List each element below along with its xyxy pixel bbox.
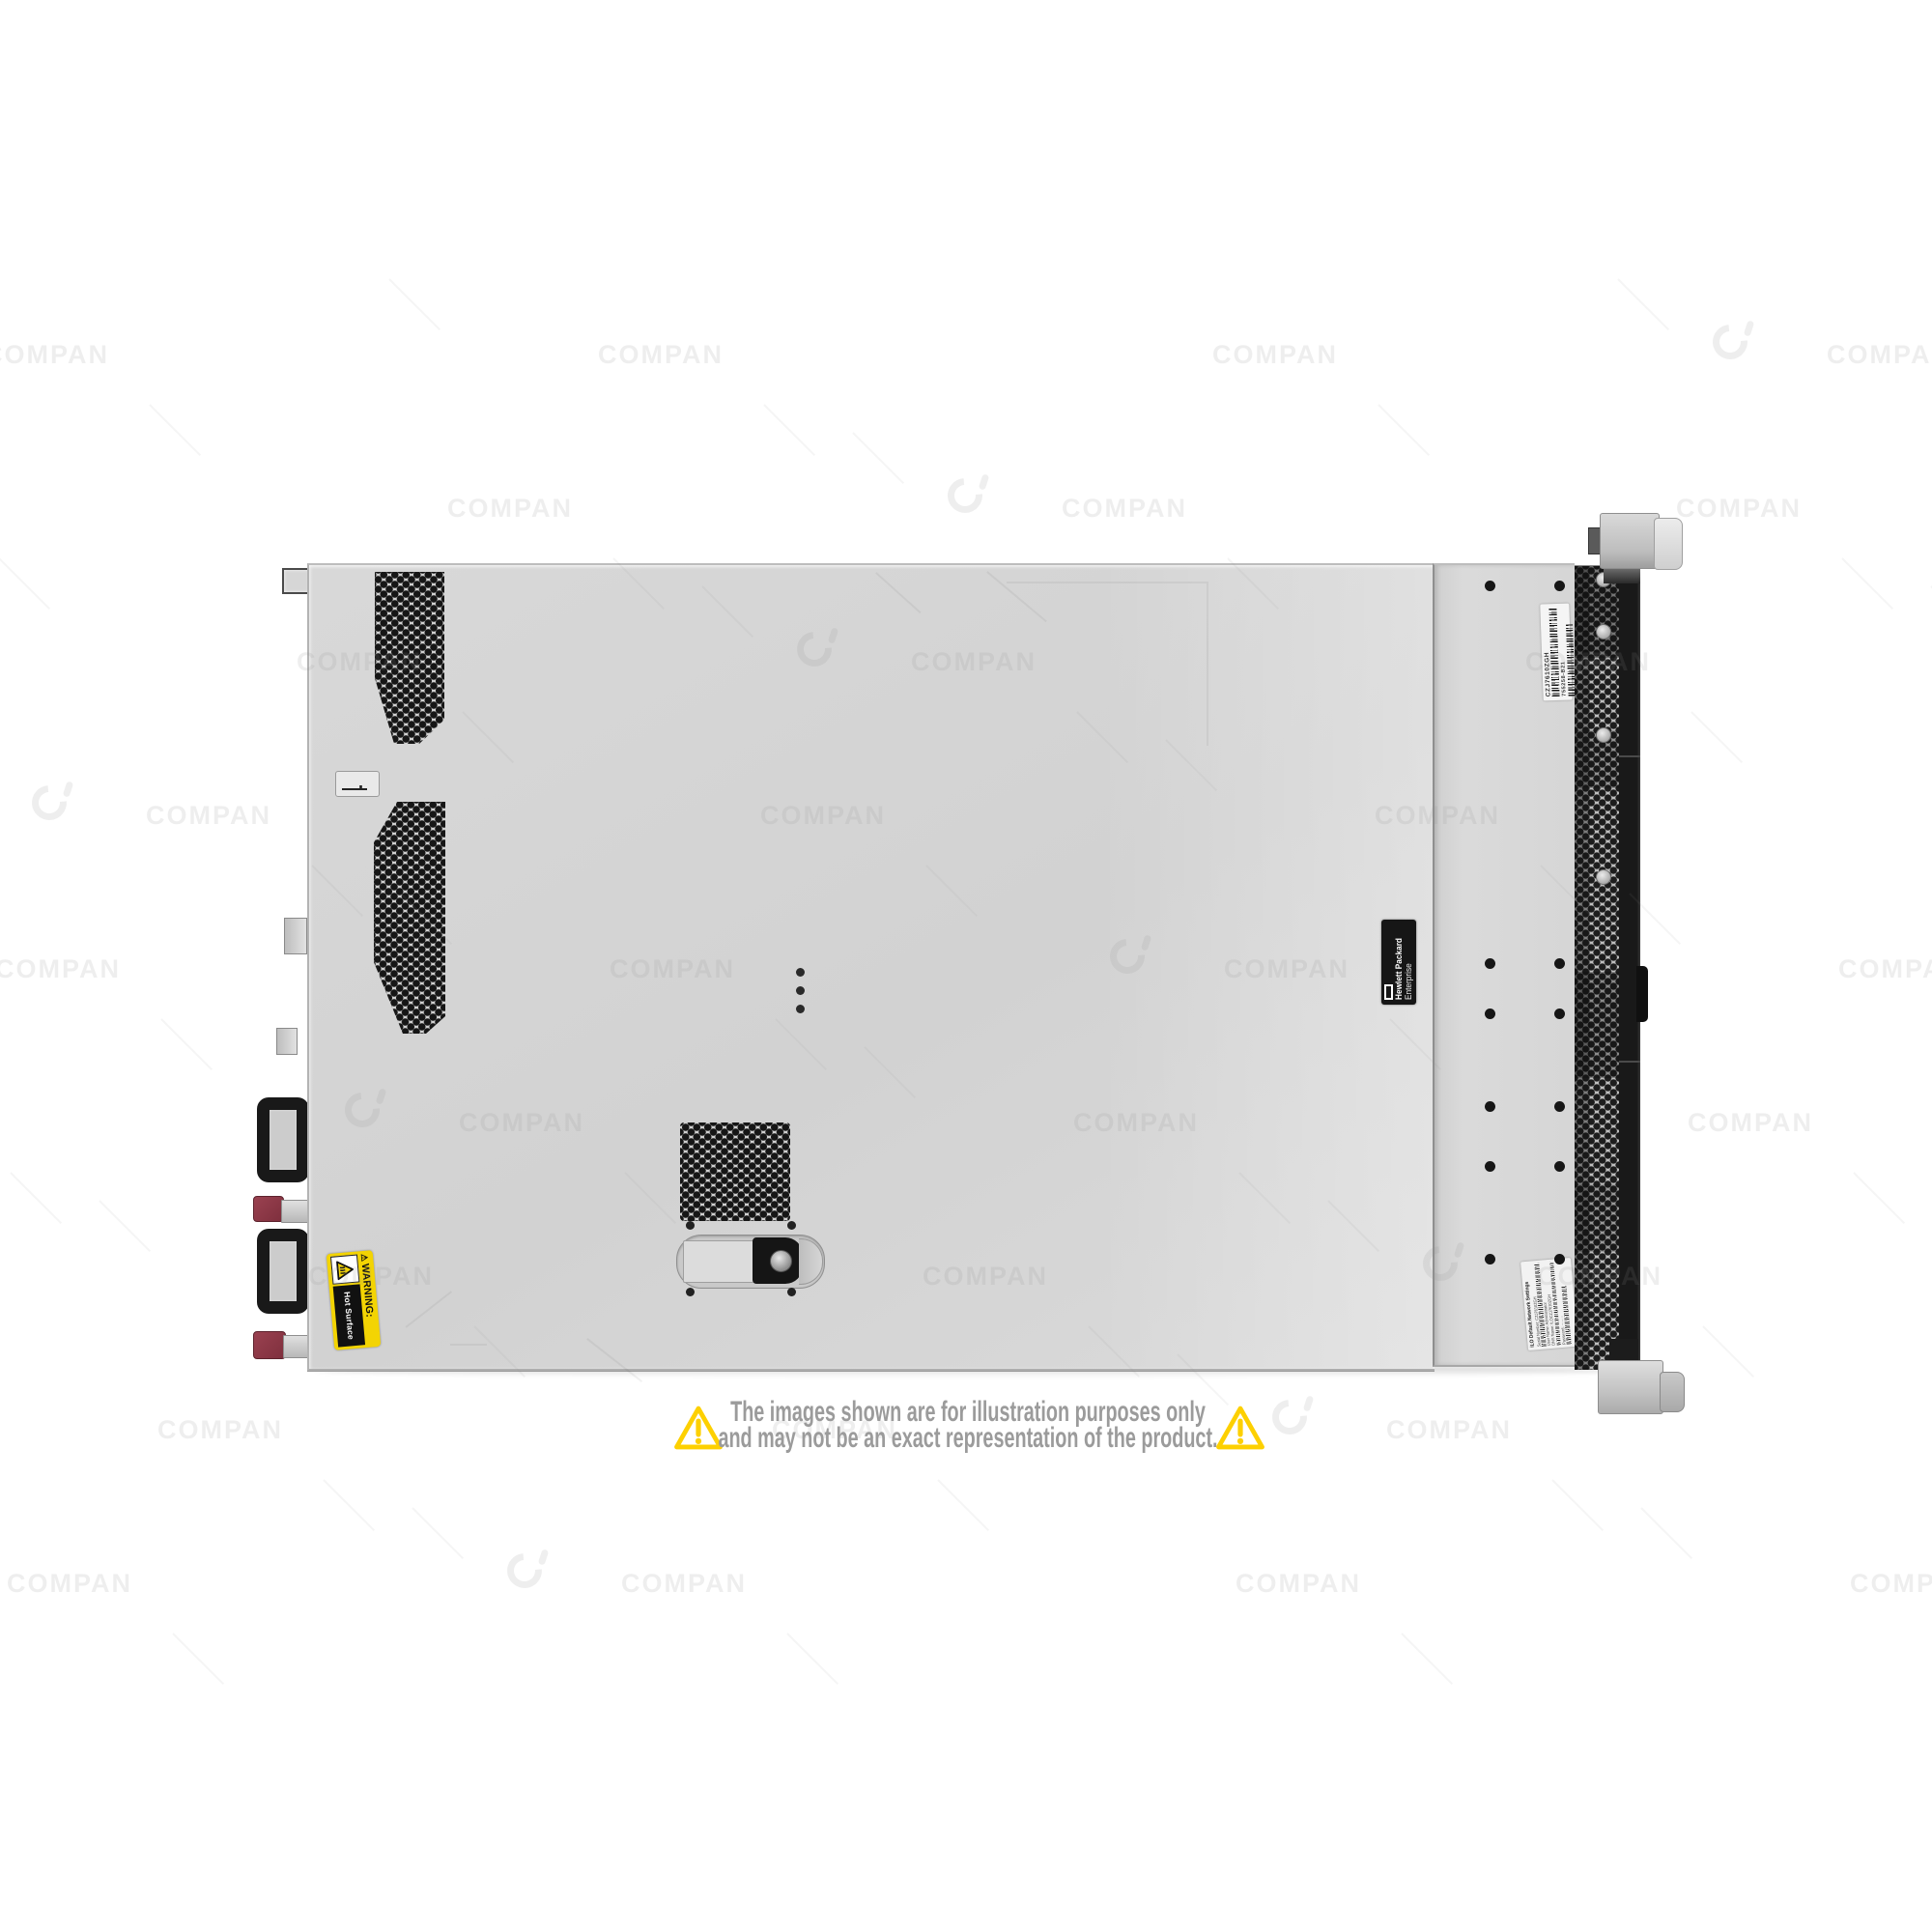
vent-grille — [680, 1122, 790, 1221]
cover-slot — [335, 771, 380, 797]
latch-screw — [770, 1250, 792, 1272]
sfp-cage — [283, 1335, 308, 1358]
cover-dot — [796, 986, 805, 995]
hot-surface-icon — [330, 1254, 359, 1284]
disclaimer-line1: The images shown are for illustration pu… — [648, 1399, 1289, 1425]
warning-triangle-icon — [1215, 1401, 1265, 1455]
rear-metal-fitting — [284, 918, 307, 954]
ilo-settings-label: iLO Default Network Settings Serial Numb… — [1520, 1258, 1578, 1350]
product-photo-canvas: ⚠ WARNING: Hot Surface — [0, 0, 1932, 1932]
vent-grille — [367, 570, 446, 746]
rear-metal-fitting — [276, 1028, 298, 1055]
front-panel-tab — [1636, 966, 1648, 1022]
screw-hole — [1485, 581, 1495, 591]
top-cover: ⚠ WARNING: Hot Surface — [307, 563, 1435, 1371]
latch-plate — [683, 1240, 754, 1283]
rack-ear-top-cap — [1654, 518, 1683, 570]
bezel-seam — [1619, 1061, 1640, 1063]
cover-crease — [406, 1291, 452, 1327]
screw-hole — [1554, 1254, 1565, 1264]
warning-triangle-icon: ⚠ — [358, 1253, 370, 1262]
screw-hole — [686, 1288, 695, 1296]
cover-crease — [987, 571, 1047, 622]
sfp-cage — [281, 1200, 308, 1223]
screw-hole — [1554, 1101, 1565, 1112]
screw-hole — [787, 1221, 796, 1230]
cover-dot — [796, 1005, 805, 1013]
front-section-panel: CZJ7610ZGH 755258-B21 iLO Default Networ… — [1433, 563, 1575, 1367]
serial-barcode-label: CZJ7610ZGH 755258-B21 — [1540, 604, 1572, 701]
hpe-element-logo — [1384, 984, 1393, 1000]
disclaimer: The images shown are for illustration pu… — [0, 1391, 1932, 1478]
brand-line2: Enterprise — [1404, 930, 1413, 1000]
disclaimer-text: The images shown are for illustration pu… — [648, 1399, 1289, 1451]
disclaimer-line2: and may not be an exact representation o… — [648, 1425, 1289, 1451]
grille-shading — [1575, 972, 1619, 1078]
vent-grille — [372, 800, 447, 1036]
cover-emboss-line — [450, 1344, 487, 1346]
screw-hole — [1485, 1254, 1495, 1264]
screw-hole — [1554, 958, 1565, 969]
screw-hole — [1485, 1101, 1495, 1112]
server-photo: ⚠ WARNING: Hot Surface — [0, 0, 1932, 1932]
rack-ear-shadow — [1604, 568, 1640, 583]
screw-hole — [1554, 1161, 1565, 1172]
screw-hole — [787, 1288, 796, 1296]
screw-hole — [686, 1221, 695, 1230]
brand-line1: Hewlett Packard — [1394, 930, 1404, 1000]
cover-emboss-line — [1207, 582, 1208, 746]
cover-dot — [796, 968, 805, 977]
psu-handle — [257, 1229, 309, 1314]
rack-ear-top — [1600, 513, 1660, 569]
grille-screw — [1596, 727, 1611, 743]
screw-hole — [1485, 1009, 1495, 1019]
hot-surface-warning-label: ⚠ WARNING: Hot Surface — [327, 1250, 382, 1350]
hpe-brand-label: Hewlett Packard Enterprise — [1381, 920, 1416, 1005]
cover-emboss-line — [1007, 582, 1207, 583]
sfp-latch — [253, 1196, 284, 1222]
grille-screw — [1596, 624, 1611, 639]
bezel-seam — [1619, 755, 1640, 757]
latch-end-cap — [799, 1238, 823, 1285]
slot-hook — [342, 785, 367, 790]
grille-shading — [1575, 1184, 1619, 1252]
cover-latch — [676, 1235, 825, 1289]
screw-hole — [1485, 1161, 1495, 1172]
psu-handle — [257, 1097, 309, 1182]
cover-crease — [875, 572, 921, 613]
grille-screw — [1596, 869, 1611, 885]
warning-body: Hot Surface — [333, 1284, 365, 1347]
screw-hole — [1554, 1009, 1565, 1019]
screw-hole — [1485, 958, 1495, 969]
screw-hole — [1554, 581, 1565, 591]
sfp-latch — [253, 1331, 286, 1359]
front-grille — [1575, 565, 1619, 1370]
